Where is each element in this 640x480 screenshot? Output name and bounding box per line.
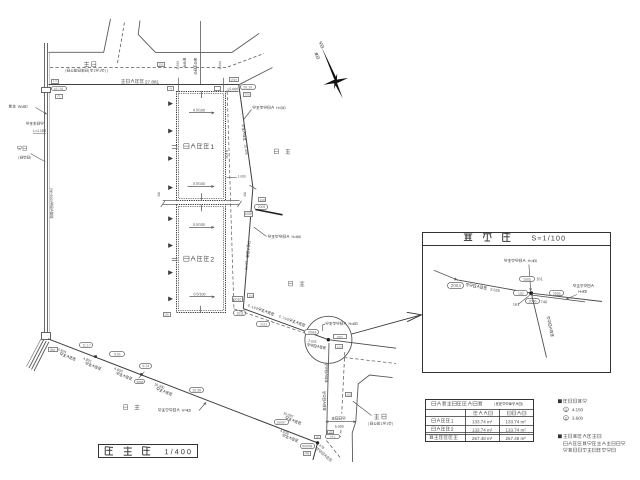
svg-text:75: 75	[57, 94, 61, 98]
svg-text:(W=600): (W=600)	[49, 188, 53, 202]
svg-text:2010: 2010	[234, 298, 242, 302]
svg-text:8000B: 8000B	[302, 444, 313, 448]
svg-text:0.5/100: 0.5/100	[193, 292, 205, 296]
svg-text:4.150: 4.150	[572, 407, 584, 412]
svg-text:1: 1	[386, 422, 388, 426]
svg-text:0.5/100: 0.5/100	[193, 182, 205, 186]
svg-text:11.17: 11.17	[82, 344, 90, 348]
svg-text:L=1.100: L=1.100	[33, 129, 46, 133]
svg-text:15097: 15097	[277, 420, 286, 424]
svg-text:267.48 m²: 267.48 m²	[472, 436, 493, 441]
svg-text:150: 150	[337, 345, 342, 349]
svg-text:1500: 1500	[523, 278, 531, 282]
svg-text:H=400: H=400	[578, 290, 587, 294]
svg-text:161: 161	[536, 276, 543, 281]
svg-text:10.30: 10.30	[192, 388, 201, 392]
svg-text:267.48 m²: 267.48 m²	[505, 436, 526, 441]
svg-text:102: 102	[518, 292, 524, 296]
svg-text:1: 1	[99, 69, 101, 73]
svg-text:150: 150	[249, 294, 254, 298]
svg-text:2005: 2005	[553, 292, 561, 296]
svg-text:W=400: W=400	[18, 104, 29, 109]
svg-text:1: 1	[451, 419, 454, 425]
svg-text:150: 150	[164, 312, 169, 316]
svg-text:2: 2	[565, 416, 567, 420]
svg-text:1: 1	[381, 422, 383, 426]
svg-text:9.01: 9.01	[114, 352, 121, 356]
svg-text:750: 750	[245, 92, 250, 96]
svg-text:150: 150	[346, 393, 351, 397]
svg-text:2012: 2012	[260, 322, 268, 326]
svg-text:)): ))	[105, 69, 109, 73]
svg-text:8008: 8008	[137, 380, 144, 384]
svg-text:300: 300	[157, 192, 161, 197]
svg-text:1: 1	[565, 408, 567, 412]
svg-text:746: 746	[540, 299, 547, 304]
svg-text:4.75: 4.75	[53, 80, 58, 83]
svg-text:1: 1	[94, 69, 96, 73]
svg-text:150: 150	[260, 198, 265, 202]
svg-text:3.000: 3.000	[176, 61, 180, 69]
svg-text:5.000: 5.000	[335, 425, 344, 429]
svg-text:1910: 1910	[230, 78, 237, 82]
svg-text:3.600: 3.600	[572, 416, 584, 421]
svg-text:161: 161	[513, 302, 520, 307]
svg-text:300: 300	[243, 192, 247, 197]
svg-text:H=400: H=400	[291, 235, 300, 239]
svg-text:133.74 m²: 133.74 m²	[505, 428, 526, 433]
svg-text:133.74 m²: 133.74 m²	[472, 428, 493, 433]
svg-text:): )	[392, 422, 393, 426]
svg-text:2002: 2002	[330, 434, 336, 438]
svg-text:160B: 160B	[245, 212, 254, 216]
svg-text:16.76: 16.76	[244, 261, 249, 270]
svg-text:S=1/100: S=1/100	[531, 235, 566, 242]
svg-text:133.74 m²: 133.74 m²	[472, 419, 493, 424]
svg-text:2011: 2011	[236, 312, 243, 316]
svg-text:2009: 2009	[258, 205, 266, 209]
svg-text:1500: 1500	[337, 335, 343, 339]
svg-text:2004: 2004	[308, 331, 316, 335]
svg-text:2: 2	[451, 427, 454, 433]
svg-text:133.74 m²: 133.74 m²	[505, 419, 526, 424]
svg-text:42: 42	[373, 422, 377, 426]
svg-text:0.5/100: 0.5/100	[193, 223, 205, 227]
svg-text:20.10: 20.10	[243, 85, 252, 89]
svg-text:29B: 29B	[304, 451, 309, 455]
svg-text:27.881: 27.881	[145, 80, 160, 85]
svg-text:1: 1	[210, 144, 214, 151]
svg-text:150: 150	[159, 63, 164, 67]
svg-text:): )	[522, 402, 523, 406]
svg-text:): )	[30, 156, 31, 160]
svg-text:42: 42	[70, 69, 74, 73]
svg-text:2004: 2004	[451, 283, 462, 288]
svg-text:3.000: 3.000	[218, 61, 222, 69]
svg-text:1.000: 1.000	[238, 175, 246, 179]
svg-text:10.756: 10.756	[54, 87, 64, 91]
svg-text:2: 2	[210, 257, 214, 264]
svg-text:H=400: H=400	[182, 409, 191, 413]
svg-text:8.400: 8.400	[225, 150, 229, 158]
svg-text:H=400: H=400	[528, 259, 537, 263]
svg-text:9.24: 9.24	[142, 364, 149, 368]
svg-text:BM: BM	[50, 348, 55, 352]
svg-text:0.5/100: 0.5/100	[193, 108, 205, 112]
svg-text:H=200: H=200	[276, 106, 285, 110]
svg-text:△5.000: △5.000	[226, 87, 238, 91]
svg-text:1/400: 1/400	[164, 447, 193, 456]
svg-text:H=400: H=400	[348, 322, 357, 326]
